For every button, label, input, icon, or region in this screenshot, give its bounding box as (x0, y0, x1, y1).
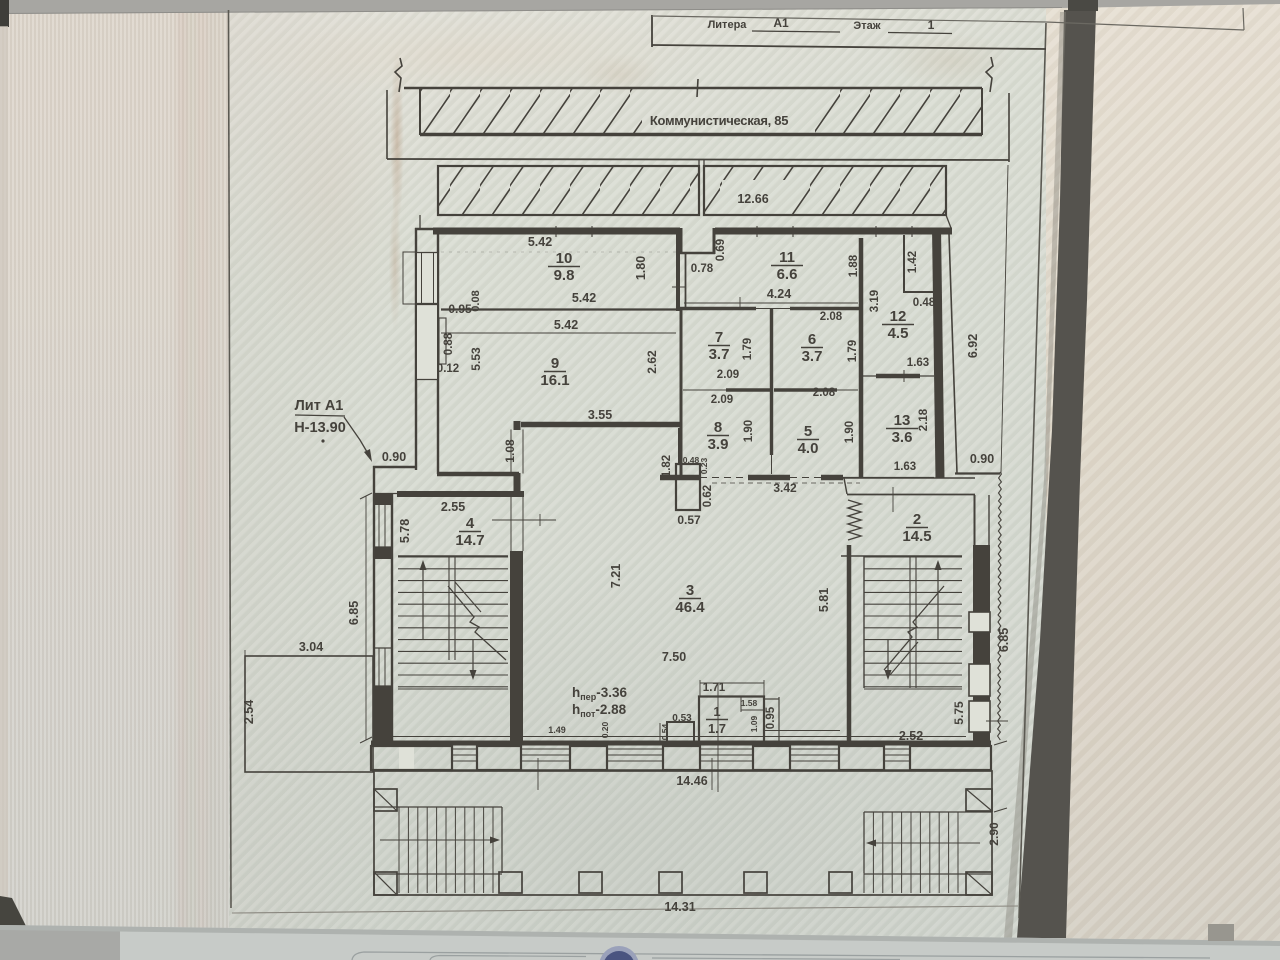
svg-text:14.5: 14.5 (902, 528, 931, 545)
svg-text:0.90: 0.90 (382, 450, 406, 464)
svg-text:2.08: 2.08 (813, 387, 836, 399)
svg-text:0.95: 0.95 (765, 706, 777, 729)
svg-text:6.6: 6.6 (777, 266, 798, 283)
svg-text:5.42: 5.42 (572, 291, 596, 305)
svg-text:5.42: 5.42 (554, 318, 578, 332)
svg-text:4.5: 4.5 (888, 325, 909, 342)
svg-text:2.09: 2.09 (717, 369, 739, 381)
svg-text:13: 13 (894, 412, 911, 429)
svg-text:1.90: 1.90 (844, 421, 856, 443)
svg-text:Литера: Литера (708, 19, 748, 31)
svg-text:1.09: 1.09 (749, 715, 759, 732)
svg-text:2.55: 2.55 (441, 500, 465, 514)
svg-text:0.62: 0.62 (702, 485, 714, 507)
svg-text:14.7: 14.7 (455, 532, 484, 549)
svg-text:1.88: 1.88 (848, 254, 860, 277)
svg-text:5.81: 5.81 (817, 588, 831, 612)
svg-text:2.18: 2.18 (918, 408, 930, 431)
svg-text:1.90: 1.90 (743, 420, 755, 442)
svg-text:1: 1 (928, 18, 935, 32)
svg-text:16.1: 16.1 (540, 372, 569, 389)
svg-text:11: 11 (779, 249, 795, 266)
svg-text:1.08: 1.08 (503, 439, 517, 463)
svg-text:1.49: 1.49 (548, 725, 566, 735)
svg-text:5.42: 5.42 (528, 235, 552, 249)
svg-text:3.55: 3.55 (588, 408, 612, 422)
svg-text:0.54: 0.54 (660, 723, 670, 740)
svg-text:0.23: 0.23 (699, 457, 709, 474)
svg-text:9: 9 (551, 355, 559, 372)
svg-text:0.20: 0.20 (600, 721, 610, 738)
svg-text:46.4: 46.4 (675, 599, 705, 616)
svg-text:10: 10 (556, 250, 573, 267)
svg-text:Лит А1: Лит А1 (295, 398, 344, 414)
svg-text:0.57: 0.57 (677, 513, 701, 527)
svg-text:1.79: 1.79 (742, 338, 754, 360)
svg-text:4.0: 4.0 (798, 440, 819, 457)
svg-text:7.21: 7.21 (609, 564, 623, 588)
svg-text:6.92: 6.92 (966, 334, 980, 358)
svg-text:8: 8 (714, 419, 722, 436)
svg-text:1.71: 1.71 (703, 682, 726, 694)
svg-text:1.63: 1.63 (907, 357, 929, 369)
svg-text:14.31: 14.31 (664, 900, 695, 914)
svg-text:3.7: 3.7 (709, 346, 730, 363)
svg-text:0.95: 0.95 (448, 302, 472, 316)
svg-text:2.90: 2.90 (987, 822, 1001, 846)
svg-text:hпер-3.36: hпер-3.36 (572, 685, 627, 702)
svg-text:1.58: 1.58 (741, 698, 758, 708)
svg-text:6: 6 (808, 331, 816, 348)
svg-text:0.90: 0.90 (970, 452, 994, 466)
svg-text:Н-13.90: Н-13.90 (294, 420, 346, 436)
svg-text:5.53: 5.53 (469, 347, 483, 371)
svg-text:1.42: 1.42 (907, 251, 919, 273)
svg-text:3: 3 (686, 582, 694, 599)
svg-text:2.08: 2.08 (820, 311, 843, 323)
svg-text:2.62: 2.62 (645, 350, 659, 374)
svg-text:5: 5 (804, 423, 812, 440)
svg-text:7: 7 (715, 329, 723, 346)
svg-text:0.08: 0.08 (470, 290, 482, 311)
svg-text:Коммунистическая, 85: Коммунистическая, 85 (650, 113, 788, 128)
svg-text:0.53: 0.53 (672, 713, 692, 724)
svg-text:2.09: 2.09 (711, 394, 733, 406)
svg-text:6.85: 6.85 (997, 628, 1011, 652)
svg-text:1.82: 1.82 (661, 455, 673, 477)
svg-text:1.80: 1.80 (634, 256, 648, 280)
svg-text:0.78: 0.78 (691, 263, 714, 275)
svg-text:5.75: 5.75 (952, 701, 966, 725)
svg-text:hпот-2.88: hпот-2.88 (572, 702, 627, 719)
svg-text:12: 12 (890, 308, 907, 325)
svg-text:3.42: 3.42 (773, 481, 797, 495)
svg-text:9.8: 9.8 (554, 267, 575, 284)
svg-text:А1: А1 (773, 16, 789, 30)
svg-text:1.79: 1.79 (847, 340, 859, 362)
svg-text:1.63: 1.63 (894, 461, 916, 473)
svg-text:3.04: 3.04 (299, 640, 323, 654)
svg-text:0.48: 0.48 (683, 455, 700, 465)
svg-text:0.69: 0.69 (715, 239, 727, 261)
svg-text:7.50: 7.50 (662, 650, 686, 664)
svg-text:3.7: 3.7 (802, 348, 823, 365)
svg-text:2: 2 (913, 511, 921, 528)
svg-text:4.24: 4.24 (767, 287, 791, 301)
svg-text:12.66: 12.66 (737, 192, 768, 206)
svg-text:6.85: 6.85 (347, 601, 361, 625)
svg-text:1: 1 (713, 704, 720, 719)
svg-text:0.48: 0.48 (913, 297, 936, 309)
svg-text:4: 4 (466, 515, 475, 532)
svg-text:5.78: 5.78 (398, 519, 412, 543)
svg-text:0.88: 0.88 (443, 332, 455, 355)
svg-text:2.54: 2.54 (242, 700, 256, 724)
svg-text:3.6: 3.6 (892, 429, 913, 446)
svg-text:Этаж: Этаж (853, 20, 880, 32)
svg-text:2.52: 2.52 (899, 729, 923, 743)
svg-text:1.7: 1.7 (708, 721, 726, 736)
svg-text:3.9: 3.9 (708, 436, 729, 453)
svg-text:14.46: 14.46 (676, 774, 707, 788)
svg-text:0.12: 0.12 (437, 363, 459, 375)
svg-text:3.19: 3.19 (869, 290, 881, 312)
